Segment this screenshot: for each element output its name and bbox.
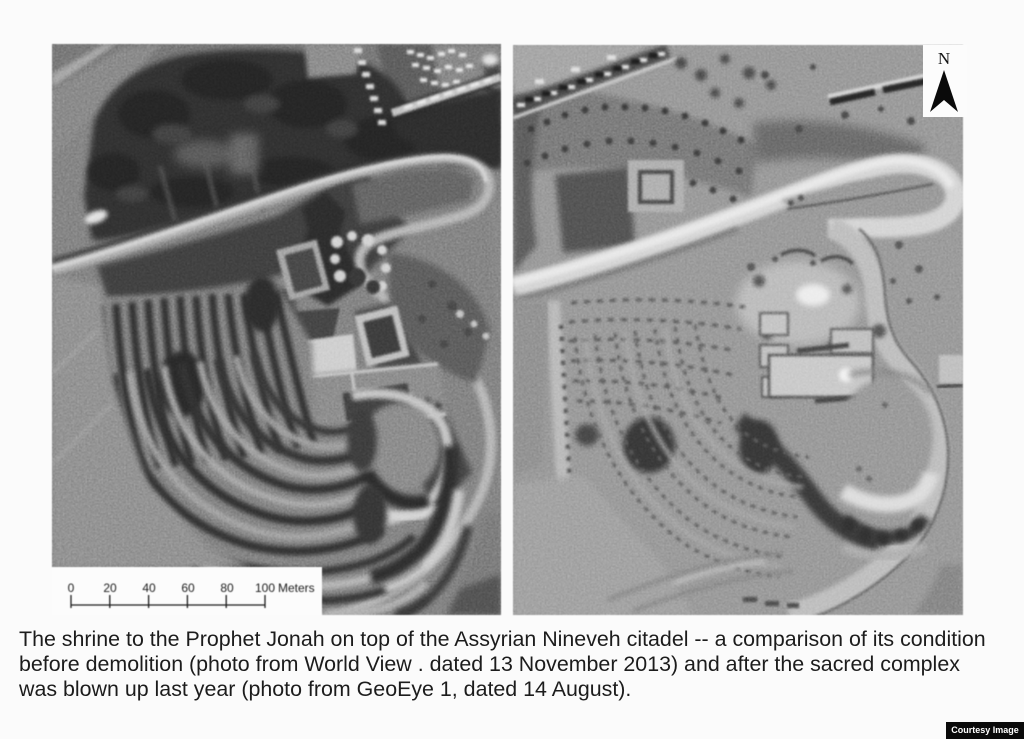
svg-text:40: 40 [142, 581, 156, 595]
svg-text:0: 0 [68, 581, 75, 595]
svg-text:100: 100 [255, 581, 275, 595]
svg-text:60: 60 [181, 581, 195, 595]
svg-text:80: 80 [220, 581, 234, 595]
svg-text:20: 20 [103, 581, 117, 595]
svg-text:Meters: Meters [278, 581, 315, 595]
svg-text:N: N [938, 49, 950, 68]
